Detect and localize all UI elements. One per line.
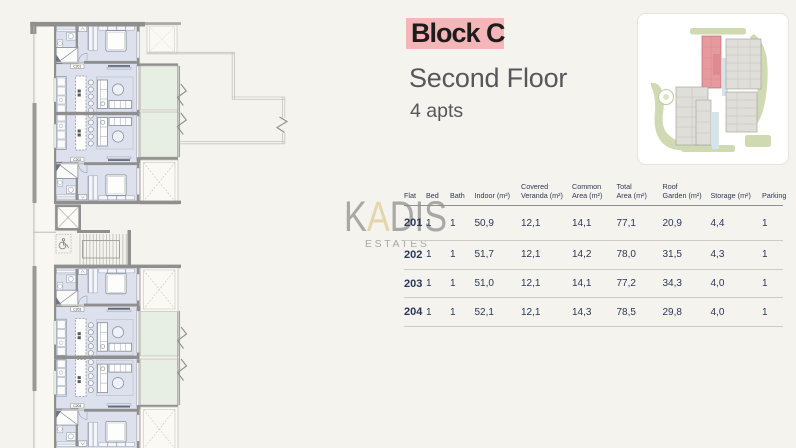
svg-text:C203: C203	[73, 307, 81, 311]
svg-text:C204: C204	[73, 404, 81, 408]
svg-text:C201: C201	[73, 65, 81, 69]
svg-text:C202: C202	[73, 158, 81, 162]
